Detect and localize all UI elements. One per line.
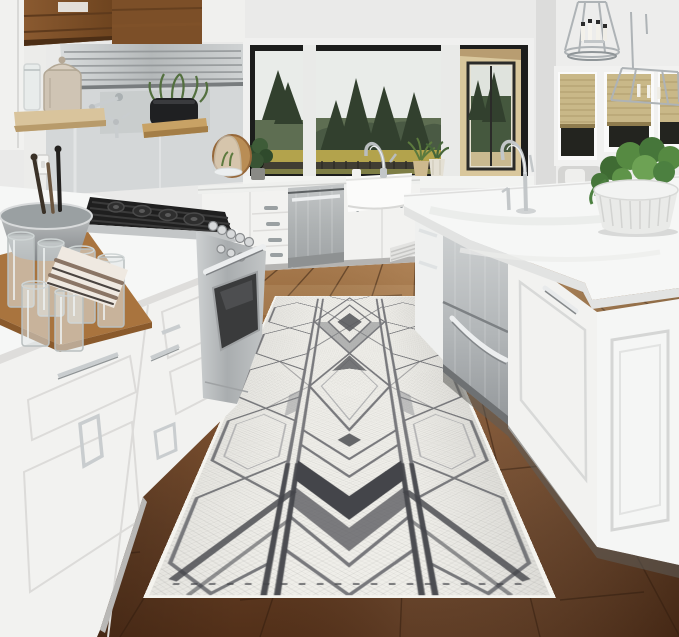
plant-bowl [591, 137, 679, 237]
island-end-panel [597, 299, 679, 565]
foreground-layer [0, 0, 679, 637]
gas-range [196, 222, 266, 405]
kitchen-scene [0, 0, 679, 637]
kitchen-island [404, 137, 679, 578]
fluted-bowl [594, 180, 678, 234]
